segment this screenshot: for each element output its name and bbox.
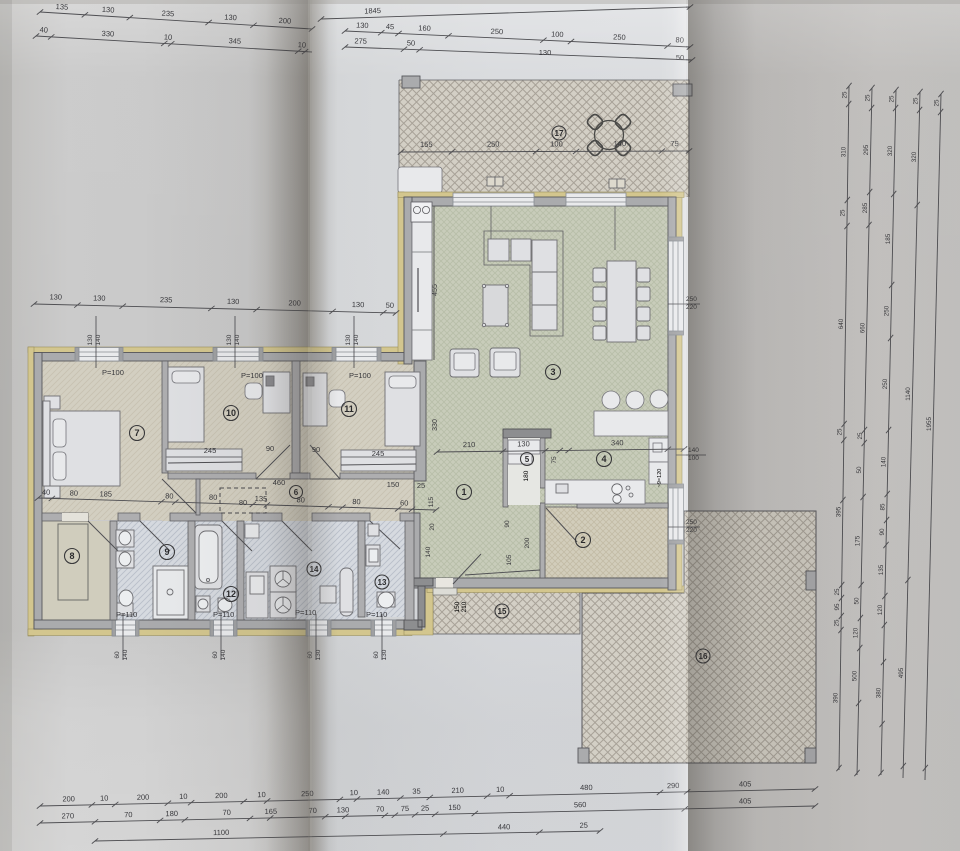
svg-text:45: 45 [386,22,395,31]
svg-text:80: 80 [352,497,361,506]
svg-text:115: 115 [428,496,435,507]
svg-text:130: 130 [93,293,106,302]
svg-text:10: 10 [496,785,505,794]
svg-text:70: 70 [376,804,385,813]
svg-text:185: 185 [99,489,112,498]
svg-text:75: 75 [551,456,558,464]
svg-text:250: 250 [487,140,500,149]
svg-text:130: 130 [352,300,365,309]
svg-text:245: 245 [372,449,385,458]
svg-text:560: 560 [574,800,587,809]
svg-text:70: 70 [124,810,133,819]
svg-text:25: 25 [417,481,425,490]
svg-text:60: 60 [114,651,121,659]
svg-text:P=110: P=110 [366,610,387,619]
svg-text:150: 150 [454,601,461,612]
svg-text:275: 275 [354,36,367,45]
svg-text:130: 130 [356,21,369,31]
svg-text:455: 455 [432,284,439,296]
svg-text:10: 10 [350,788,359,797]
svg-text:150: 150 [448,803,461,812]
svg-text:440: 440 [498,822,511,831]
svg-text:90: 90 [504,520,511,528]
svg-text:50: 50 [407,38,416,47]
svg-text:11: 11 [344,404,354,414]
svg-text:130: 130 [517,439,530,448]
svg-text:60: 60 [373,651,380,659]
svg-text:270: 270 [61,811,74,820]
svg-text:10: 10 [100,794,109,803]
svg-text:200: 200 [524,537,531,548]
svg-text:250: 250 [613,32,626,42]
svg-text:140: 140 [425,546,432,557]
svg-text:35: 35 [412,787,421,796]
svg-text:140: 140 [614,139,627,148]
svg-text:480: 480 [580,783,593,792]
svg-text:17: 17 [555,129,564,138]
svg-text:40: 40 [39,25,48,34]
svg-text:5: 5 [525,455,530,464]
svg-text:140: 140 [377,787,390,796]
svg-text:135: 135 [55,2,68,12]
svg-text:2: 2 [580,535,585,545]
svg-text:130: 130 [102,5,115,15]
svg-text:210: 210 [463,440,476,449]
svg-text:330: 330 [101,29,114,39]
svg-text:100: 100 [551,30,564,40]
svg-text:1: 1 [461,487,466,497]
svg-text:250: 250 [490,27,503,37]
svg-text:100: 100 [550,139,563,148]
svg-text:150: 150 [387,480,400,489]
svg-text:20: 20 [429,523,436,531]
svg-text:3: 3 [550,367,555,377]
svg-text:60: 60 [400,498,409,507]
svg-text:25: 25 [579,821,588,830]
svg-text:105: 105 [506,554,513,565]
svg-text:75: 75 [401,804,410,813]
svg-text:P=100: P=100 [349,371,371,380]
svg-text:160: 160 [418,23,431,33]
svg-text:180: 180 [523,470,530,481]
svg-text:210: 210 [451,786,464,795]
svg-text:210: 210 [461,601,468,612]
svg-text:130: 130 [49,292,62,301]
svg-text:340: 340 [611,438,624,447]
svg-text:50: 50 [386,301,395,310]
svg-text:1845: 1845 [364,6,381,16]
svg-text:330: 330 [432,419,439,431]
svg-text:4: 4 [601,454,606,464]
svg-text:7: 7 [134,428,139,438]
svg-text:155: 155 [420,140,433,149]
svg-text:13: 13 [378,578,387,587]
svg-text:130: 130 [87,334,94,345]
svg-text:130: 130 [337,805,350,814]
svg-text:P=100: P=100 [102,368,124,377]
svg-text:P=110: P=110 [116,610,137,619]
svg-text:8: 8 [69,551,74,561]
svg-text:25: 25 [421,804,430,813]
svg-text:15: 15 [498,607,507,616]
svg-text:130: 130 [539,48,552,57]
svg-text:200: 200 [62,794,75,803]
svg-text:130: 130 [345,334,352,345]
svg-text:40: 40 [42,488,51,497]
svg-text:80: 80 [70,488,79,497]
